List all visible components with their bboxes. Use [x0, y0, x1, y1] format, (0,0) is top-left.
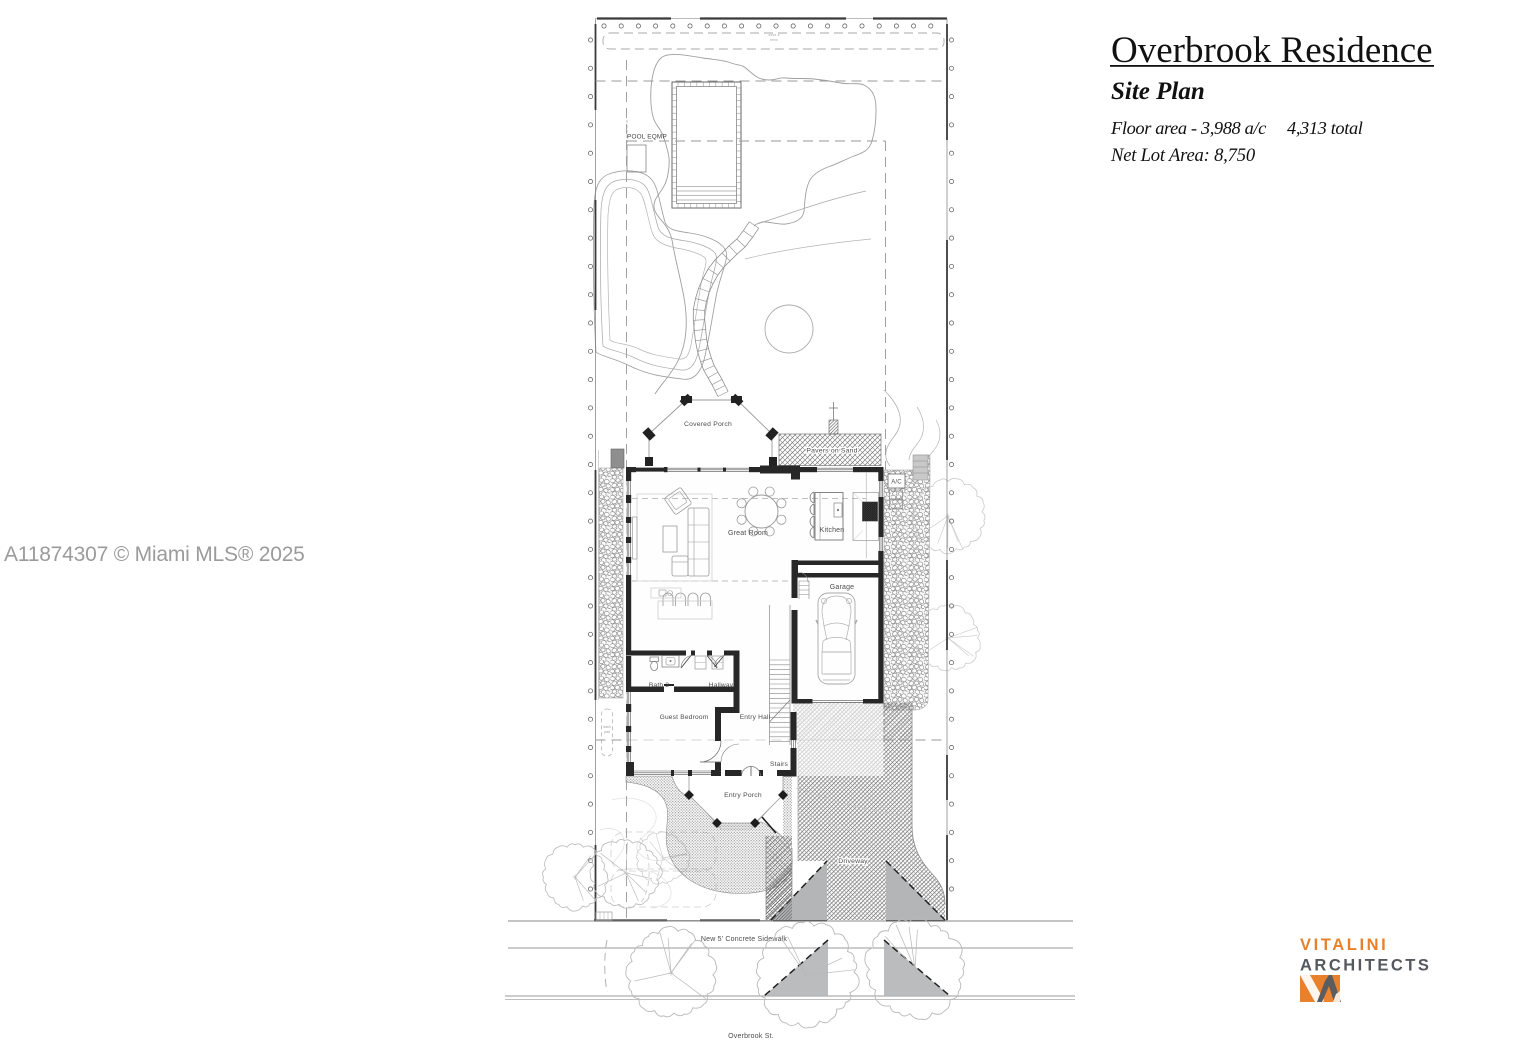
svg-text:ARCHITECTS: ARCHITECTS [1300, 957, 1431, 975]
svg-text:Covered Porch: Covered Porch [684, 421, 732, 428]
svg-text:A11874307 © Miami MLS® 2025: A11874307 © Miami MLS® 2025 [4, 543, 305, 566]
svg-text:A/C: A/C [891, 480, 902, 486]
svg-text:Bath 2: Bath 2 [649, 682, 669, 689]
svg-text:Overbrook Residence: Overbrook Residence [1111, 30, 1433, 71]
svg-text:POOL EQMP: POOL EQMP [627, 134, 667, 141]
svg-text:Hallway: Hallway [709, 682, 734, 689]
svg-text:pad: pad [604, 730, 610, 734]
svg-text:trash: trash [603, 725, 610, 729]
svg-text:Site Plan: Site Plan [1111, 78, 1205, 105]
svg-text:Floor area - 3,988 a/c 4,3: Floor area - 3,988 a/c 4,313 total [1110, 118, 1363, 138]
svg-text:Entry Hall: Entry Hall [740, 714, 771, 721]
svg-text:Net Lot Area: 8,750: Net Lot Area: 8,750 [1110, 145, 1256, 166]
svg-text:xxxx: xxxx [770, 38, 778, 42]
svg-text:Pavers on Sand: Pavers on Sand [806, 448, 857, 455]
svg-text:xxxx x: xxxx x [768, 33, 779, 37]
svg-text:Garage: Garage [830, 584, 855, 591]
svg-text:VITALINI: VITALINI [1300, 936, 1388, 954]
svg-text:Driveway: Driveway [838, 858, 868, 865]
svg-text:Great Room: Great Room [728, 530, 768, 537]
svg-text:Kitchen: Kitchen [820, 527, 845, 534]
svg-text:Entry Porch: Entry Porch [724, 792, 762, 799]
svg-text:Stairs: Stairs [770, 761, 789, 768]
svg-text:Overbrook St.: Overbrook St. [728, 1033, 774, 1040]
svg-text:Guest Bedroom: Guest Bedroom [660, 714, 709, 721]
